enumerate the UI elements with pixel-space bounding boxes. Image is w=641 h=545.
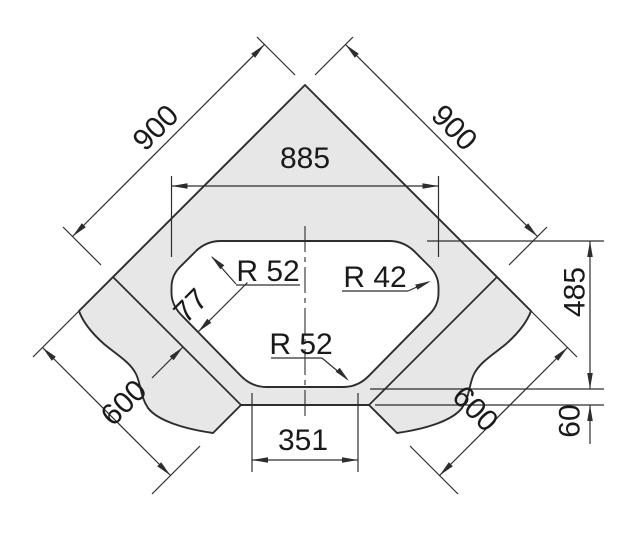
- dim-label-900-left: 900: [127, 99, 186, 158]
- radius-label-top-left: R 52: [236, 255, 299, 288]
- arrowhead: [211, 256, 224, 269]
- corner-sink-drawing-canvas: 900 900 885: [0, 0, 641, 545]
- extension-tick: [315, 37, 353, 75]
- extension-tick: [509, 227, 547, 265]
- arrowhead: [336, 368, 349, 381]
- arrowhead: [587, 241, 593, 257]
- radius-label-bottom: R 52: [269, 328, 332, 361]
- extension-tick: [257, 37, 295, 75]
- arrowhead: [172, 183, 188, 189]
- technical-drawing-page: 900 900 885: [0, 0, 641, 545]
- dim-label-900-right: 900: [425, 99, 484, 158]
- arrowhead: [415, 281, 431, 290]
- arrowhead: [252, 457, 268, 463]
- arrowhead: [423, 183, 439, 189]
- dim-label-351: 351: [278, 424, 328, 457]
- arrowhead: [342, 457, 358, 463]
- radius-callout-top-left: R 52: [211, 255, 300, 288]
- extension-tick: [33, 306, 84, 357]
- radius-callout-bottom: R 52: [269, 328, 349, 381]
- radius-label-right: R 42: [343, 261, 406, 294]
- dim-label-485: 485: [559, 267, 592, 317]
- arrowhead: [587, 405, 593, 421]
- radius-callout-right: R 42: [342, 261, 431, 294]
- arrowhead: [587, 373, 593, 389]
- dim-label-885: 885: [280, 142, 330, 175]
- extension-tick: [410, 446, 458, 494]
- extension-tick: [63, 227, 101, 265]
- extension-tick: [152, 446, 200, 494]
- dim-label-60: 60: [554, 404, 587, 437]
